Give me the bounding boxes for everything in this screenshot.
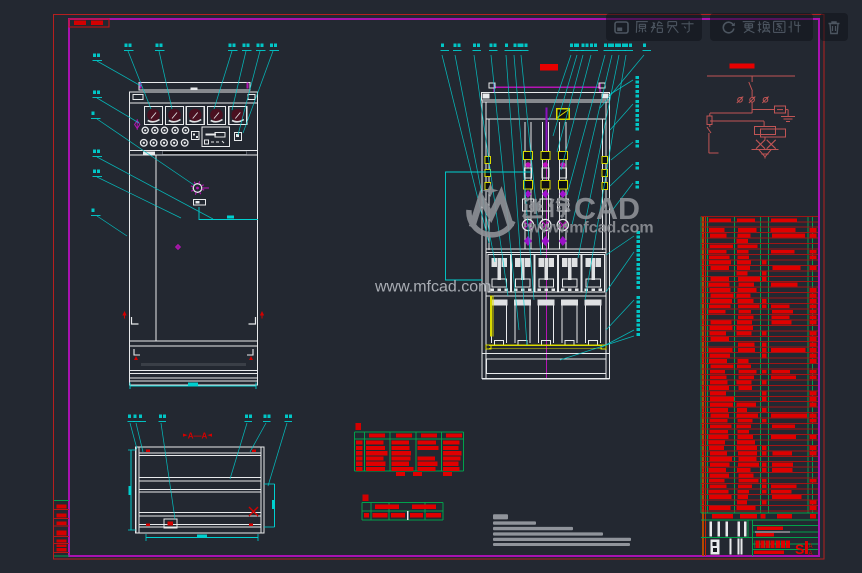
svg-text:A—A: A—A: [188, 432, 208, 441]
svg-text:A: A: [809, 544, 813, 550]
svg-text:S: S: [795, 541, 804, 557]
svg-text:A: A: [809, 551, 813, 557]
svg-text:www.mfcad.com: www.mfcad.com: [527, 220, 654, 237]
svg-text:www.mfcad.com: www.mfcad.com: [374, 279, 491, 296]
